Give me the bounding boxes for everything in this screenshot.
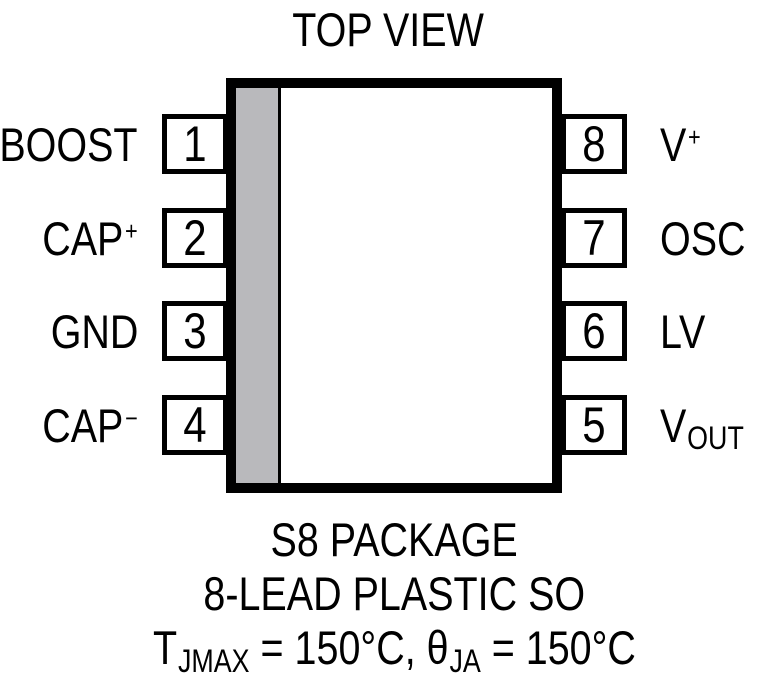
top-view-title: TOP VIEW xyxy=(28,0,748,58)
pin-8-box: 8 xyxy=(561,114,627,174)
pin-4-number: 4 xyxy=(183,396,206,454)
pin-2-number: 2 xyxy=(183,209,206,267)
pin1-indicator-stripe xyxy=(236,88,281,483)
pin-6-label: LV xyxy=(660,301,760,361)
package-name-line: S8 PACKAGE xyxy=(28,513,760,567)
pin-8-label: V+ xyxy=(660,114,760,174)
pin-6-number: 6 xyxy=(582,302,605,360)
pin-1-box: 1 xyxy=(162,114,228,174)
pinout-diagram: TOP VIEW BOOST1CAP+2GND3CAP−48V+7OSC6LV5… xyxy=(0,0,760,692)
pin-2-box: 2 xyxy=(162,208,228,268)
pin-3-label: GND xyxy=(0,301,150,361)
pin-4-box: 4 xyxy=(162,395,228,455)
pin-7-number: 7 xyxy=(582,209,605,267)
pin-7-box: 7 xyxy=(561,208,627,268)
pin-2-label: CAP+ xyxy=(0,208,150,268)
pin-6-box: 6 xyxy=(561,301,627,361)
ic-package-body xyxy=(226,78,562,493)
pin-4-label: CAP− xyxy=(0,395,150,455)
pin-8-number: 8 xyxy=(582,115,605,173)
thermal-spec-line: TJMAX = 150°C, θJA = 150°C xyxy=(28,621,760,680)
pin-3-box: 3 xyxy=(162,301,228,361)
pin-3-number: 3 xyxy=(183,302,206,360)
thermal-spec-text: TJMAX = 150°C, θJA = 150°C xyxy=(153,621,636,680)
pin-7-label: OSC xyxy=(660,208,760,268)
pin-5-number: 5 xyxy=(582,396,605,454)
pin-1-number: 1 xyxy=(183,115,206,173)
top-view-title-text: TOP VIEW xyxy=(292,2,484,57)
pin-1-label: BOOST xyxy=(0,114,150,174)
package-captions: S8 PACKAGE 8-LEAD PLASTIC SO TJMAX = 150… xyxy=(28,513,760,680)
package-type-line: 8-LEAD PLASTIC SO xyxy=(28,567,760,621)
pin-5-label: VOUT xyxy=(660,395,760,455)
pin-5-box: 5 xyxy=(561,395,627,455)
